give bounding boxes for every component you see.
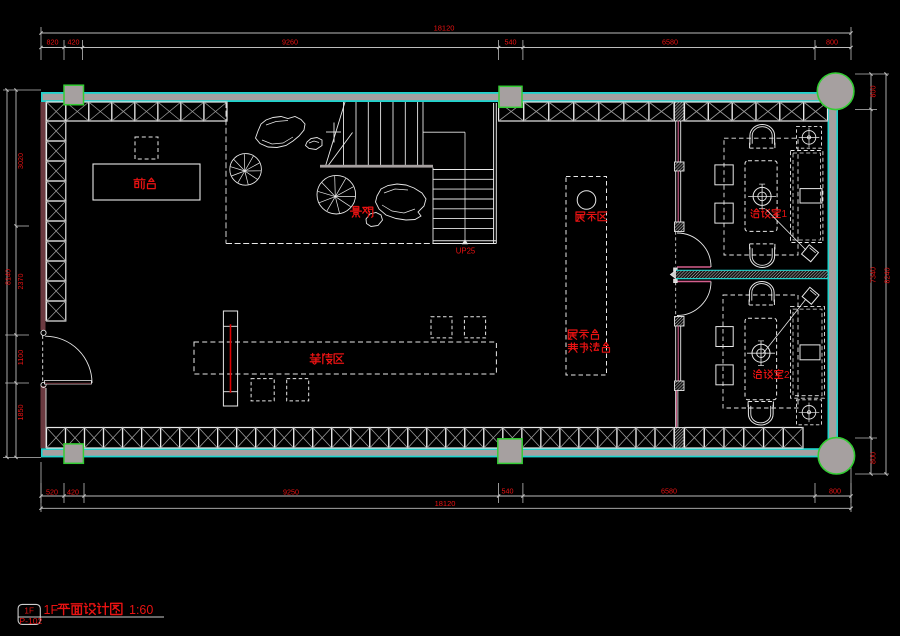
svg-text:520: 520 [46,487,58,496]
svg-text:8140: 8140 [4,269,13,285]
svg-text:2370: 2370 [16,274,25,290]
svg-text:540: 540 [502,487,514,496]
svg-text:7340: 7340 [869,267,878,283]
svg-text:3020: 3020 [16,153,25,169]
svg-text:18120: 18120 [434,24,455,33]
svg-text:8240: 8240 [883,268,892,284]
svg-text:820: 820 [47,38,59,47]
svg-text:1: 1 [782,209,788,220]
svg-text:800: 800 [869,86,878,98]
svg-text:420: 420 [67,487,79,496]
svg-text:420: 420 [68,38,80,47]
svg-text:1F: 1F [24,607,34,616]
svg-text:2: 2 [784,370,790,381]
svg-text:9260: 9260 [282,38,298,47]
svg-text:6580: 6580 [661,487,677,496]
svg-text:800: 800 [869,452,878,464]
svg-text:1850: 1850 [16,405,25,421]
svg-text:6580: 6580 [662,38,678,47]
svg-text:800: 800 [826,38,838,47]
svg-text:1F: 1F [44,603,59,617]
svg-text:540: 540 [505,38,517,47]
svg-text:18120: 18120 [435,499,456,508]
svg-text:1:60: 1:60 [129,603,153,617]
svg-text:9250: 9250 [283,487,299,496]
svg-text:P-102: P-102 [19,616,42,626]
svg-text:1100: 1100 [16,350,25,365]
svg-text:800: 800 [829,487,841,496]
svg-text:UP25: UP25 [456,247,476,256]
